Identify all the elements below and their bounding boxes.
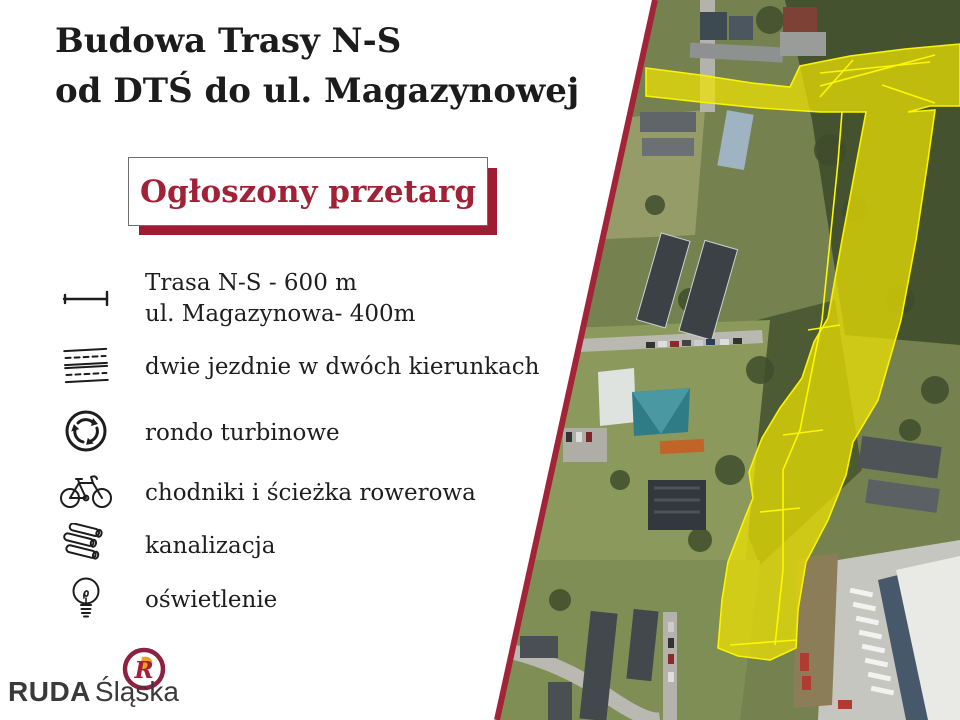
banner-box: Ogłoszony przetarg <box>128 157 488 226</box>
lightbulb-icon <box>58 575 114 623</box>
logo-name-regular: Śląska <box>95 676 179 707</box>
road-lanes-icon <box>58 344 114 386</box>
orange-building <box>660 439 705 454</box>
bicycle-icon <box>58 472 114 510</box>
title-line-1: Budowa Trasy N-S <box>55 16 615 66</box>
logo-text: RUDAŚląska <box>8 676 179 708</box>
logo-name-bold: RUDA <box>8 676 91 707</box>
feature-text: Trasa N-S - 600 m ul. Magazynowa- 400m <box>145 268 565 330</box>
status-banner: Ogłoszony przetarg <box>128 157 486 224</box>
roundabout-icon <box>58 408 114 454</box>
flat-roof-building <box>648 480 706 530</box>
pipes-icon <box>58 523 114 565</box>
feature-text: chodniki i ścieżka rowerowa <box>145 478 565 509</box>
title-line-2: od DTŚ do ul. Magazynowej <box>55 66 615 116</box>
distance-icon <box>58 286 114 308</box>
feature-text: dwie jezdnie w dwóch kierunkach <box>145 352 565 383</box>
slide: Budowa Trasy N-S od DTŚ do ul. Magazynow… <box>0 0 960 720</box>
banner-label: Ogłoszony przetarg <box>140 174 476 210</box>
feature-text: rondo turbinowe <box>145 418 565 449</box>
page-title: Budowa Trasy N-S od DTŚ do ul. Magazynow… <box>55 16 615 116</box>
feature-text: kanalizacja <box>145 531 565 562</box>
feature-text: oświetlenie <box>145 585 565 616</box>
